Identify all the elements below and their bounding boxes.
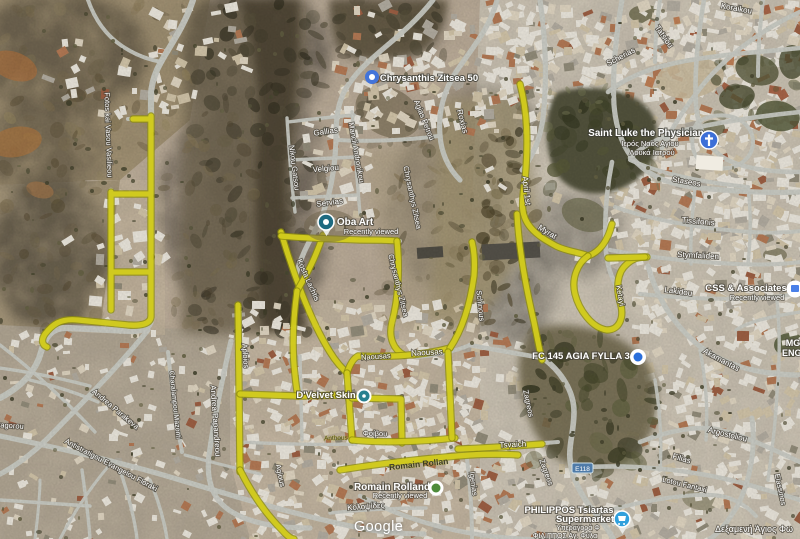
- svg-text:Recently viewed: Recently viewed: [373, 491, 428, 500]
- svg-text:E118: E118: [575, 466, 590, 473]
- svg-text:ENGI: ENGI: [782, 348, 800, 358]
- svg-text:FC 145 AGIA FYLLA 3: FC 145 AGIA FYLLA 3: [532, 351, 630, 362]
- svg-text:Naousas: Naousas: [411, 347, 443, 358]
- svg-text:Aploios: Aploios: [240, 343, 251, 368]
- svg-text:Υπεραγορά Φ: Υπεραγορά Φ: [556, 524, 600, 532]
- svg-text:Φοίβου: Φοίβου: [363, 429, 388, 439]
- svg-text:Recently viewed: Recently viewed: [344, 227, 399, 236]
- svg-text:Supermarket: Supermarket: [556, 514, 615, 525]
- svg-text:Chrysanthis Zitsea 50: Chrysanthis Zitsea 50: [380, 73, 478, 84]
- svg-text:Ιερός Ναός Αγίου: Ιερός Ναός Αγίου: [621, 139, 678, 148]
- svg-text:Λουκά Ιατρού: Λουκά Ιατρού: [629, 148, 674, 157]
- svg-text:ΦΙΛΙΠΠΟΣ Αγ. Φύλα: ΦΙΛΙΠΠΟΣ Αγ. Φύλα: [533, 532, 597, 539]
- svg-text:Anthous: Anthous: [324, 435, 349, 443]
- svg-text:Recently viewed: Recently viewed: [730, 293, 785, 302]
- svg-text:Tsvaich: Tsvaich: [499, 439, 526, 449]
- svg-text:D'Velvet Skin: D'Velvet Skin: [296, 390, 355, 401]
- svg-text:vagorou: vagorou: [0, 420, 24, 431]
- svg-text:Δεξαμενή Άγιος Φω: Δεξαμενή Άγιος Φω: [715, 524, 793, 534]
- svg-text:Saint Luke the Physician: Saint Luke the Physician: [588, 128, 703, 139]
- svg-text:MG: MG: [786, 338, 800, 348]
- svg-text:Google: Google: [354, 519, 403, 535]
